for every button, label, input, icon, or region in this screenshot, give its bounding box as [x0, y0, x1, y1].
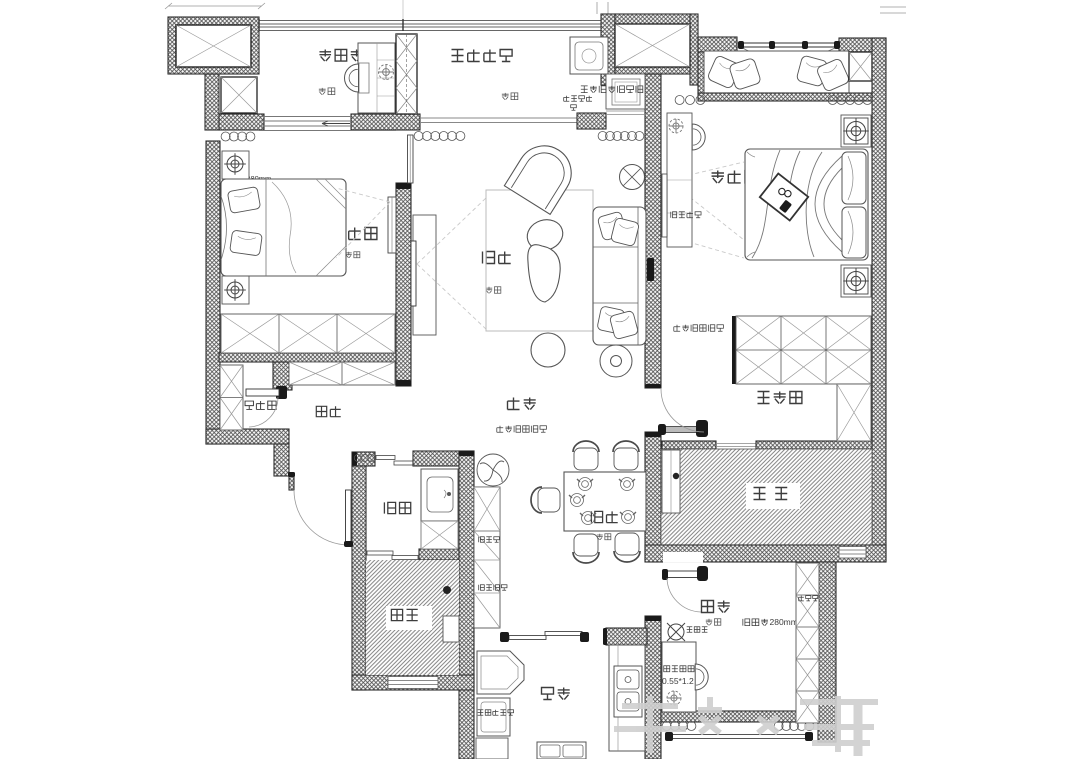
svg-text:280mm: 280mm	[770, 617, 798, 627]
svg-text:0.55*1.2: 0.55*1.2	[662, 676, 694, 686]
